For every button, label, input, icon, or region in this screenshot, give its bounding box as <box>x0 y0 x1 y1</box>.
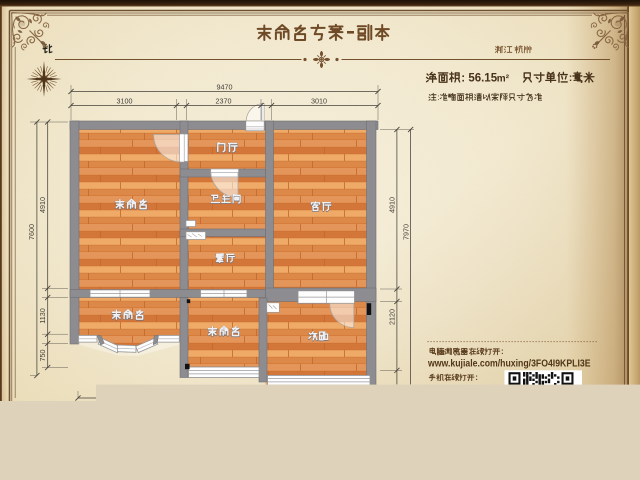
svg-text:750: 750 <box>38 350 47 362</box>
svg-text:www.kujiale.com/huxing/3FO4I9K: www.kujiale.com/huxing/3FO4I9KPLI3E <box>427 359 591 370</box>
svg-text:2120: 2120 <box>388 309 397 325</box>
svg-text:2370: 2370 <box>216 96 232 105</box>
svg-text:9470: 9470 <box>217 82 233 91</box>
svg-text:7600: 7600 <box>27 224 36 240</box>
svg-text:4910: 4910 <box>388 197 397 213</box>
svg-text::: : <box>437 93 439 102</box>
svg-text::: : <box>501 347 504 356</box>
svg-text::: : <box>475 373 478 382</box>
svg-text::: : <box>569 73 572 84</box>
svg-text:3010: 3010 <box>311 96 327 105</box>
svg-text:7970: 7970 <box>401 224 410 240</box>
svg-text:3100: 3100 <box>117 96 133 105</box>
svg-text:m²: m² <box>497 73 510 84</box>
svg-text:4910: 4910 <box>38 197 47 213</box>
svg-text:: 56.15: : 56.15 <box>461 72 497 84</box>
svg-text:1130: 1130 <box>38 308 47 323</box>
